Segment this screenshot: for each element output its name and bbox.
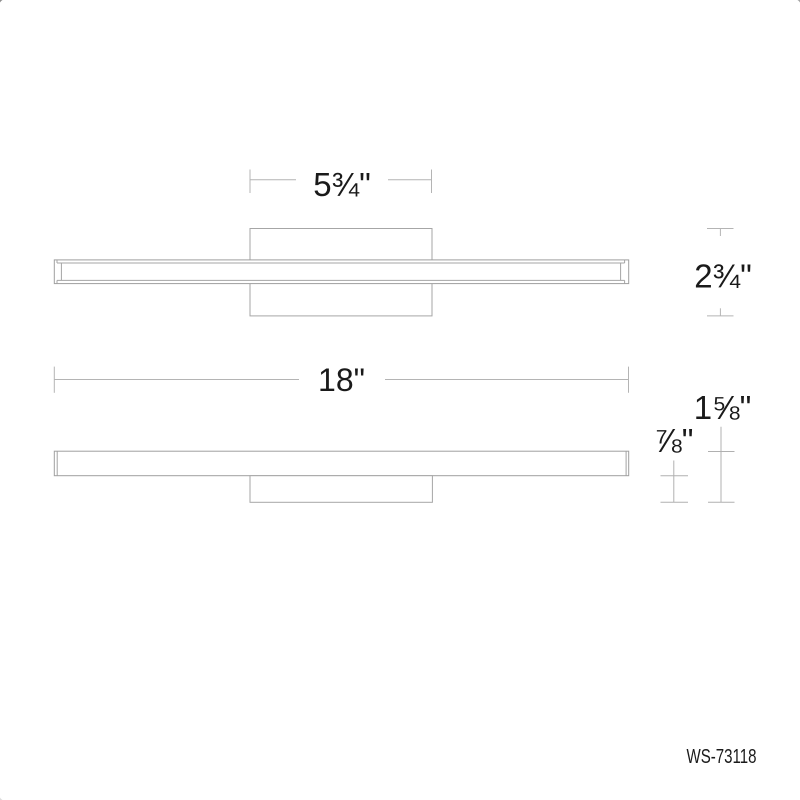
- svg-text:⅞": ⅞": [654, 422, 693, 459]
- svg-text:1⅝": 1⅝": [694, 389, 752, 426]
- svg-text:18": 18": [318, 362, 365, 398]
- svg-text:2¾": 2¾": [694, 258, 752, 295]
- svg-text:5¾": 5¾": [313, 166, 371, 203]
- svg-text:WS-73118: WS-73118: [687, 746, 757, 768]
